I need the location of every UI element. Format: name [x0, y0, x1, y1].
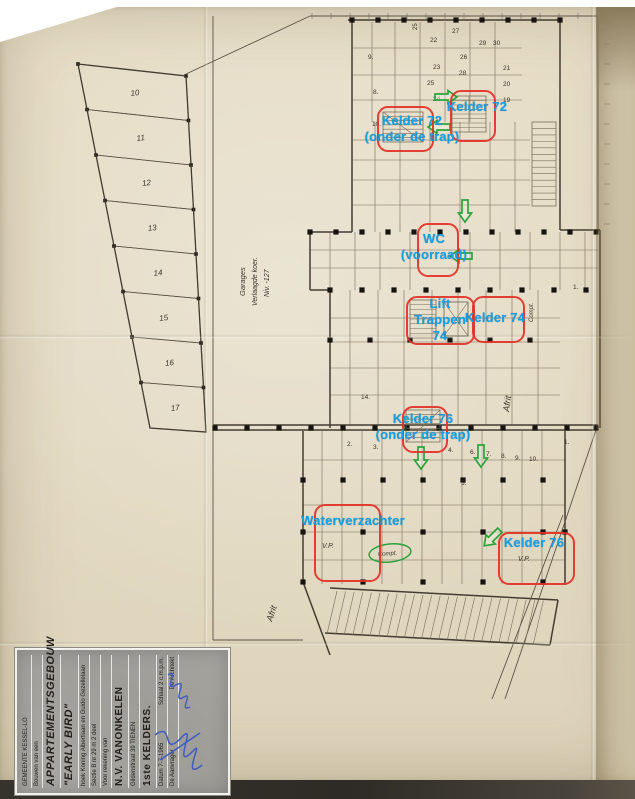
plan-label: Afrit [264, 604, 279, 624]
title-block-row: De AanvragerDe Architekt [168, 655, 179, 788]
plan-label: 3. [373, 444, 379, 451]
plan-label: 28 [459, 70, 467, 77]
annotation-text: (voorraad) [344, 247, 524, 263]
title-block: GEMEENTE KESSEL-LOBouwen van eenAPPARTEM… [15, 648, 230, 795]
annotation-label-kelder-72: Kelder 72 [387, 99, 567, 115]
title-block-text: Sectie B nr 29 m 2 deel [91, 724, 99, 786]
plan-label: 7. [486, 451, 492, 458]
garage-number: 13 [147, 223, 157, 233]
garage-number: 10 [130, 88, 140, 98]
title-block-row: N.V. VANONKELEN [112, 655, 129, 788]
plan-label: 8. [501, 453, 507, 460]
plan-label: Niv. -127 [264, 268, 271, 297]
title-block-text: De Architekt [169, 657, 177, 689]
plan-label: 4. [448, 447, 454, 454]
title-block-text: 1ste KELDERS. [141, 705, 155, 786]
plan-label: 27 [452, 28, 460, 35]
plan-label: 6. [470, 449, 476, 456]
title-block-row: APPARTEMENTSGEBOUW [43, 655, 61, 788]
plan-label: 26 [460, 54, 468, 61]
plan-label: 9. [368, 54, 374, 61]
scanned-floor-plan-page: 10111213141516179.8.10.22272930262328252… [0, 0, 635, 799]
title-block-text: Gildenstraat 39 TIENEN [130, 722, 138, 786]
title-block-text: Datum 7-7-1965 [158, 743, 166, 786]
plan-label: Garages [238, 267, 247, 296]
title-block-text: hoek Koning Albertlaan en Guido Gezellel… [80, 665, 88, 786]
plan-label: 23 [433, 64, 441, 71]
title-block-text: N.V. VANONKELEN [113, 686, 127, 786]
green-arrow-icon [459, 200, 472, 222]
plan-label: 1. [564, 439, 570, 446]
title-block-text: GEMEENTE KESSEL-LO [22, 717, 30, 786]
plan-label: 14. [361, 394, 370, 401]
annotation-text: Kelder 76 [333, 411, 513, 427]
title-block-row: 1ste KELDERS. [140, 655, 157, 788]
title-block-row: Datum 7-7-1965Schaal 2 c.m.p.m. [157, 655, 168, 788]
title-block-row: Bouwen van een [32, 655, 43, 788]
title-block-text: Schaal 2 c.m.p.m. [158, 657, 166, 705]
annotation-label-kelder-72-onder-de-trap: Kelder 72(onder de trap) [322, 113, 502, 145]
plan-label: 25 [413, 23, 419, 30]
title-block-row: "EARLY BIRD" [61, 655, 79, 788]
plan-label: 9. [515, 455, 521, 462]
plan-label: 20 [503, 81, 511, 88]
plan-label: 30 [493, 40, 501, 47]
title-block-row: hoek Koning Albertlaan en Guido Gezellel… [79, 655, 90, 788]
title-block-row: Voor rekening van [101, 655, 112, 788]
garage-number: 11 [136, 133, 145, 143]
title-block-text: APPARTEMENTSGEBOUW [44, 636, 59, 786]
plan-label: 1. [573, 284, 579, 291]
fold-crease [590, 6, 595, 782]
annotation-text: Kelder 76 [444, 535, 624, 551]
fold-crease [0, 334, 635, 339]
annotation-text: Kelder 74 [405, 310, 585, 326]
garage-number: 12 [141, 178, 151, 188]
garage-number: 14 [153, 268, 163, 278]
title-block-row: GEMEENTE KESSEL-LO [21, 655, 32, 788]
annotation-text: WC [344, 231, 524, 247]
title-block-text: De Aanvrager [169, 749, 177, 786]
plan-label: 5. [461, 480, 467, 487]
paper-corner-shadow [596, 6, 635, 91]
title-block-text: "EARLY BIRD" [62, 703, 77, 786]
plan-label: 22 [430, 37, 438, 44]
annotation-label-wc-voorraad: WC(voorraad) [344, 231, 524, 263]
annotation-text: Kelder 72 [322, 113, 502, 129]
garage-number: 16 [164, 358, 174, 368]
plan-label: 8. [373, 89, 379, 96]
annotation-text: (onder de trap) [322, 129, 502, 145]
annotation-label-waterverzachter: Waterverzachter [263, 513, 443, 529]
plan-label: Verlaagde koer. [252, 257, 259, 306]
title-block-row: Gildenstraat 39 TIENEN [129, 655, 140, 788]
plan-label: 10. [529, 456, 538, 463]
annotation-label-kelder-76-onder-de-trap: Kelder 76(onder de trap) [333, 411, 513, 443]
title-block-text: Voor rekening van [102, 738, 110, 786]
annotation-label-kelder-74: Kelder 74 [405, 310, 585, 326]
annotation-text: (onder de trap) [333, 427, 513, 443]
garage-number: 17 [170, 403, 180, 413]
plan-label: 25 [427, 80, 435, 87]
fold-crease [0, 641, 635, 646]
title-block-text: Bouwen van een [33, 741, 41, 786]
garage-number: 15 [159, 313, 169, 323]
annotation-text: Kelder 72 [387, 99, 567, 115]
annotation-text: 74 [350, 328, 530, 344]
title-block-row: Sectie B nr 29 m 2 deel [90, 655, 101, 788]
plan-label: 29 [479, 40, 487, 47]
plan-label: 21 [503, 65, 511, 72]
annotation-label-kelder-76: Kelder 76 [444, 535, 624, 551]
paper-right-edge [596, 6, 635, 782]
annotation-text: Waterverzachter [263, 513, 443, 529]
